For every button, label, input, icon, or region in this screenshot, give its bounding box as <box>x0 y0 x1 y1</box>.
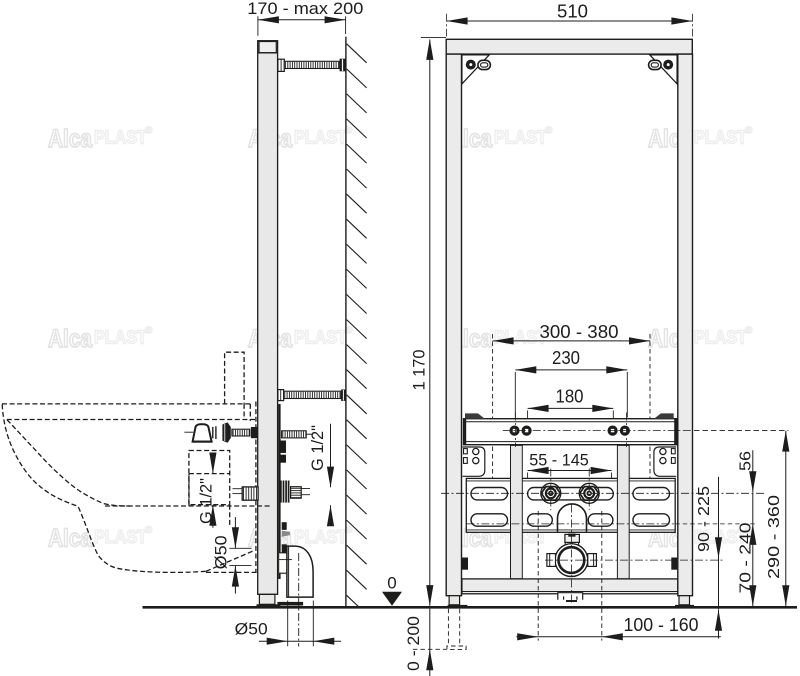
svg-text:®: ® <box>145 126 153 137</box>
svg-text:90 - 225: 90 - 225 <box>696 486 713 552</box>
svg-text:PLAST: PLAST <box>494 127 548 148</box>
svg-text:PLAST: PLAST <box>94 526 148 547</box>
svg-text:Alca: Alca <box>48 325 93 353</box>
svg-text:Alca: Alca <box>48 525 93 553</box>
svg-text:®: ® <box>745 126 753 137</box>
svg-text:0: 0 <box>387 574 396 593</box>
svg-text:PLAST: PLAST <box>294 526 348 547</box>
svg-text:56: 56 <box>738 451 755 471</box>
svg-text:®: ® <box>745 326 753 337</box>
svg-text:®: ® <box>145 326 153 337</box>
svg-text:®: ® <box>545 126 553 137</box>
svg-text:510: 510 <box>557 2 588 22</box>
svg-text:290 - 360: 290 - 360 <box>766 495 783 579</box>
svg-text:Ø50: Ø50 <box>212 535 231 569</box>
svg-text:PLAST: PLAST <box>94 127 148 148</box>
svg-text:170 - max 200: 170 - max 200 <box>247 0 363 18</box>
svg-text:®: ® <box>145 525 153 536</box>
svg-text:G 1/2": G 1/2" <box>309 425 327 471</box>
svg-text:PLAST: PLAST <box>294 127 348 148</box>
svg-text:300 - 380: 300 - 380 <box>540 322 619 342</box>
svg-text:PLAST: PLAST <box>294 327 348 348</box>
svg-text:Alca: Alca <box>48 125 93 153</box>
svg-text:PLAST: PLAST <box>694 127 748 148</box>
svg-text:100 - 160: 100 - 160 <box>624 615 699 635</box>
svg-text:0 - 200: 0 - 200 <box>404 616 423 671</box>
svg-text:Ø50: Ø50 <box>235 620 268 639</box>
svg-text:230: 230 <box>552 348 580 368</box>
svg-text:PLAST: PLAST <box>694 327 748 348</box>
svg-text:PLAST: PLAST <box>94 327 148 348</box>
svg-text:55 - 145: 55 - 145 <box>529 451 589 470</box>
svg-text:180: 180 <box>556 387 584 407</box>
svg-text:1 170: 1 170 <box>410 350 429 391</box>
